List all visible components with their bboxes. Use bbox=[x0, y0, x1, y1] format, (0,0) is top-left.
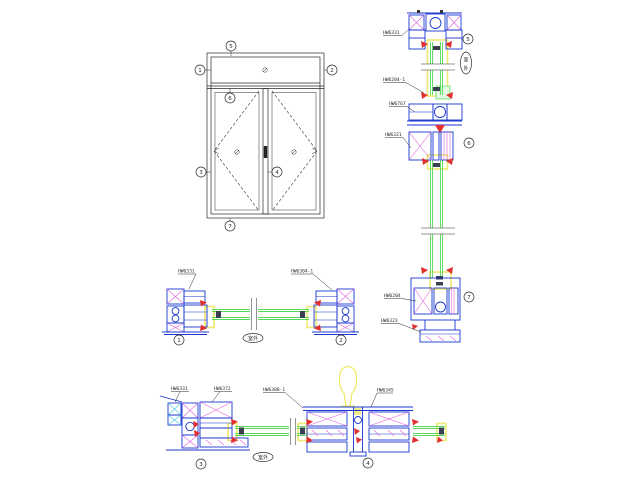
callout-transom: 6 bbox=[228, 96, 232, 102]
break-line bbox=[252, 298, 257, 330]
glass-symbol-icons bbox=[235, 68, 296, 154]
callout-section: 3 bbox=[199, 462, 203, 468]
callout-bottom: 7 bbox=[228, 224, 232, 230]
middle-row-labels: HW6331 HW6304-1 1 2 室外 bbox=[174, 269, 346, 346]
callout-section: 2 bbox=[339, 338, 343, 344]
horizontal-section-row-jambs: HW6331 HW6304-1 1 2 室外 bbox=[162, 269, 359, 346]
part-label: HW6308-1 bbox=[263, 387, 285, 393]
break-line bbox=[291, 418, 296, 445]
part-label: HW6204 bbox=[384, 293, 401, 299]
callout-bottom-left: 3 bbox=[199, 170, 203, 176]
part-label: HW6331 bbox=[383, 30, 400, 36]
part-label: HW6372 bbox=[214, 386, 231, 392]
section-transom-profile bbox=[407, 92, 462, 165]
opening-dash-right bbox=[272, 91, 317, 211]
horizontal-section-row-bottom: HW6331 HW6372 HW6308-1 HW6345 3 4 室外 bbox=[160, 367, 446, 470]
part-label: HW6767 bbox=[389, 101, 406, 107]
callout-section: 7 bbox=[467, 295, 471, 301]
part-label: HW6323 bbox=[381, 318, 398, 324]
callout-top: 5 bbox=[229, 44, 233, 50]
orientation-label: 室外 bbox=[258, 454, 268, 461]
callout-right: 2 bbox=[330, 68, 334, 74]
callout-bottom-center: 4 bbox=[275, 170, 279, 176]
glass-run-horizontal bbox=[212, 310, 309, 320]
part-label: HW6331 bbox=[171, 386, 188, 392]
vertical-section-stack: HW6331 HW6204-1 HW6767 HW6321 HW6204 HW6… bbox=[381, 10, 474, 342]
orientation-char: 室 bbox=[463, 57, 468, 64]
part-label: HW6321 bbox=[385, 132, 402, 138]
part-label: HW6304-1 bbox=[291, 269, 313, 275]
opening-dash-left bbox=[214, 91, 259, 211]
callout-section: 1 bbox=[177, 338, 181, 344]
callout-section: 6 bbox=[467, 141, 471, 147]
orientation-label: 室外 bbox=[248, 335, 258, 342]
cad-drawing-canvas: 5 1 2 6 3 4 7 bbox=[0, 0, 640, 480]
door-handle-outline bbox=[339, 367, 356, 407]
callout-section: 5 bbox=[466, 37, 470, 43]
elevation-view: 5 1 2 6 3 4 7 bbox=[195, 41, 337, 231]
section-left-jamb-profile bbox=[162, 289, 209, 335]
section-right-jamb-profile bbox=[312, 289, 359, 335]
part-label: HW6331 bbox=[178, 269, 195, 275]
bottom-row-labels: HW6331 HW6372 HW6308-1 HW6345 3 4 室外 bbox=[171, 386, 394, 469]
orientation-char: 外 bbox=[463, 65, 468, 72]
part-label: HW6204-1 bbox=[383, 77, 405, 83]
part-label: HW6345 bbox=[377, 388, 394, 394]
section-head-profile bbox=[407, 10, 462, 49]
door-handle-mark bbox=[264, 146, 267, 158]
section-four-profile bbox=[303, 407, 443, 456]
elevation-callouts: 5 1 2 6 3 4 7 bbox=[195, 41, 337, 231]
callout-section: 4 bbox=[366, 461, 370, 467]
callout-left: 1 bbox=[198, 68, 202, 74]
